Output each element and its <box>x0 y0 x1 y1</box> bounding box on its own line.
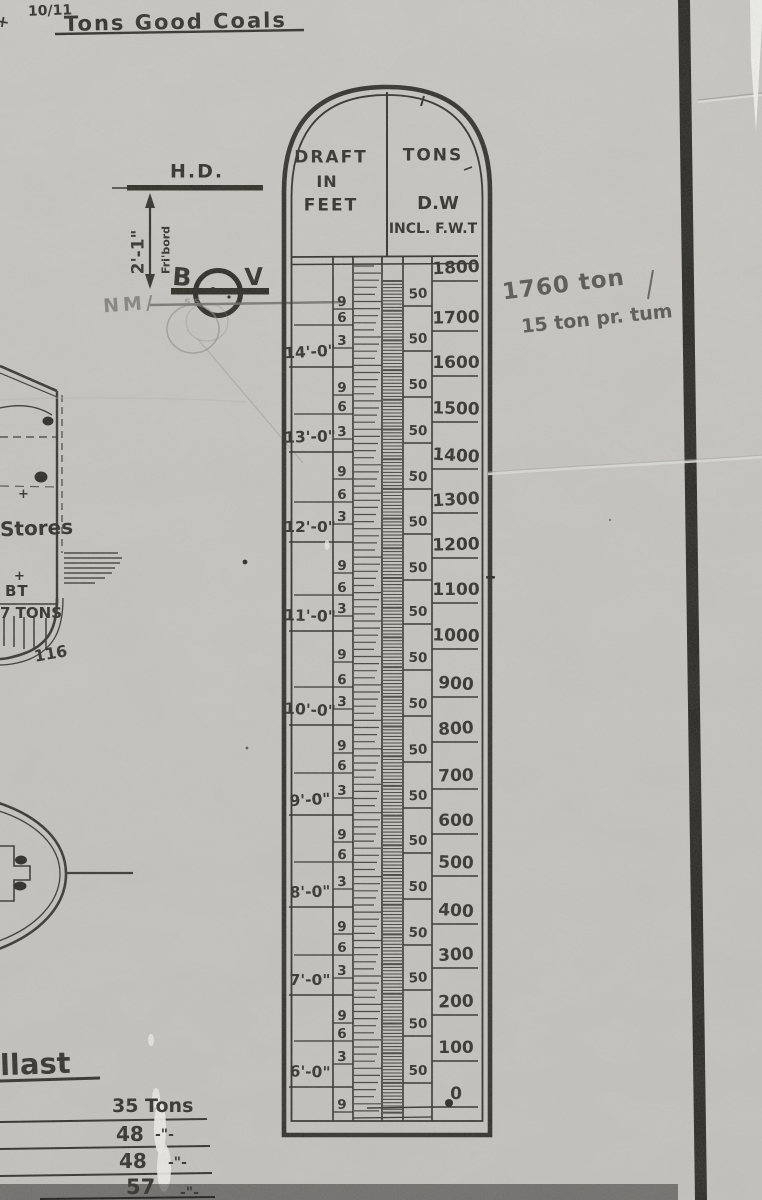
draft-foot-label: 10'-0" <box>284 700 337 721</box>
ballast-row-value: 35 Tons <box>112 1097 193 1116</box>
tons-label: 600 <box>438 811 474 831</box>
draft-inch-mark: 6 <box>337 1026 347 1043</box>
freeboard-dimension: 2'-1" <box>131 230 148 275</box>
drawing-linework <box>0 0 762 1200</box>
nm-pencil-label: NM/ <box>103 294 158 317</box>
draft-inch-mark: 6 <box>337 310 347 326</box>
tons-label: 1100 <box>432 580 479 600</box>
draft-inch-mark: 9 <box>337 464 347 480</box>
fifty-label: 50 <box>408 513 428 530</box>
draft-inch-mark: 9 <box>337 294 347 311</box>
draft-inch-mark: 9 <box>337 1008 347 1025</box>
scale-header-dw: D.W <box>417 195 459 213</box>
draft-foot-label: 9'-0" <box>289 790 331 810</box>
plus-mark-upper: + <box>18 488 29 501</box>
fifty-label: 50 <box>408 788 427 805</box>
hull-tons-label: 7 TONS <box>0 606 62 621</box>
fribord-label: Fri'bord <box>161 226 172 274</box>
fifty-label: 50 <box>408 560 427 577</box>
fifty-label: 50 <box>409 604 428 620</box>
draft-inch-mark: 9 <box>337 647 346 663</box>
ballast-row-ditto: -"- <box>180 1186 199 1200</box>
tons-label: 500 <box>438 853 474 874</box>
scale-header-draft: DRAFT <box>294 150 368 167</box>
tons-label: 0 <box>450 1084 462 1104</box>
bottom-light-band <box>0 1184 678 1200</box>
ballast-row-ditto: -"- <box>155 1128 174 1142</box>
fifty-label: 50 <box>408 423 427 440</box>
ballast-row-value: 48 <box>119 1151 147 1171</box>
fifty-label: 50 <box>408 285 428 302</box>
scale-header-feet: FEET <box>304 198 358 215</box>
fifty-label: 50 <box>408 695 428 712</box>
tons-label: 1600 <box>432 353 479 373</box>
fifty-label: 50 <box>409 377 428 393</box>
draft-inch-mark: 6 <box>337 940 346 956</box>
tons-label: 900 <box>438 673 475 695</box>
fifty-label: 50 <box>408 741 428 758</box>
top-note-text: Tons Good Coals <box>64 10 287 35</box>
fifty-label: 50 <box>408 879 427 896</box>
scale-header-in: IN <box>316 174 337 190</box>
draft-foot-label: 14'-0" <box>284 342 337 363</box>
draft-inch-mark: 6 <box>337 580 347 597</box>
draft-inch-mark: 3 <box>337 424 347 441</box>
draft-inch-mark: 9 <box>337 919 347 935</box>
tons-label: 1400 <box>432 445 480 468</box>
loadline-letter-b: B <box>172 264 193 290</box>
fifty-label: 50 <box>408 468 428 485</box>
draft-inch-mark: 3 <box>337 333 346 349</box>
draft-inch-mark: 9 <box>337 380 347 396</box>
fifty-label: 50 <box>409 1063 428 1079</box>
tons-label: 800 <box>438 718 475 740</box>
page-spine-band <box>678 0 707 1200</box>
draft-inch-mark: 3 <box>337 601 347 617</box>
scale-header-incl-fwt: INCL. F.W.T <box>389 222 477 236</box>
draft-inch-mark: 9 <box>337 1097 346 1113</box>
fifty-label: 50 <box>408 924 428 941</box>
bow-contour-sketch <box>0 802 133 950</box>
ballast-heading: llast <box>0 1049 71 1080</box>
draft-inch-mark: 6 <box>337 758 347 774</box>
tons-label: 100 <box>438 1038 474 1058</box>
draft-inch-mark: 9 <box>337 558 347 575</box>
draft-inch-mark: 6 <box>337 672 347 688</box>
tons-label: 400 <box>438 900 475 922</box>
draft-foot-label: 13'-0" <box>284 427 336 446</box>
draft-foot-label: 11'-0" <box>284 606 336 625</box>
fifty-label: 50 <box>409 833 428 849</box>
fifty-label: 50 <box>408 969 428 986</box>
draft-inch-mark: 9 <box>337 738 347 755</box>
hd-label: H.D. <box>170 163 224 182</box>
scanned-drawing-page: + 10/11 Tons Good Coals H.D. 2'-1" Fri'b… <box>0 0 762 1200</box>
tons-label: 1000 <box>432 625 480 646</box>
tons-label: 1300 <box>432 489 480 512</box>
fifty-label: 50 <box>408 1016 427 1033</box>
ballast-row-ditto: -"- <box>168 1156 187 1170</box>
draft-inch-mark: 6 <box>337 487 346 503</box>
draft-inch-mark: 3 <box>337 783 346 799</box>
draft-foot-label: 12'-0" <box>284 518 336 536</box>
bt-label: BT <box>5 584 29 599</box>
tons-label: 700 <box>438 766 474 787</box>
s-pencil-marks: s s <box>184 297 199 307</box>
tons-label: 1800 <box>432 257 480 280</box>
draft-inch-mark: 3 <box>337 963 347 979</box>
draft-foot-label: 8'-0" <box>289 882 330 901</box>
tons-label: 1500 <box>432 398 480 419</box>
loadline-letter-v: V <box>244 265 264 290</box>
tons-label: 1200 <box>432 534 480 555</box>
ballast-row-value: 48 <box>116 1124 144 1144</box>
tons-label: 200 <box>438 992 474 1013</box>
draft-inch-mark: 3 <box>337 874 347 891</box>
draft-inch-mark: 3 <box>337 694 347 711</box>
paper-creases <box>0 93 762 474</box>
fifty-label: 50 <box>408 650 427 667</box>
tons-label: 300 <box>438 944 475 966</box>
draft-inch-mark: 9 <box>337 827 347 843</box>
draft-inch-mark: 3 <box>337 509 347 525</box>
draft-foot-label: 7'-0" <box>290 971 331 989</box>
draft-foot-label: 6'-0" <box>289 1062 330 1081</box>
tons-label: 1700 <box>432 307 480 328</box>
scale-header-tons: TONS <box>403 148 464 165</box>
draft-inch-mark: 3 <box>337 1049 347 1065</box>
ballast-row-value: 57 <box>126 1177 155 1198</box>
draft-inch-mark: 6 <box>337 399 347 416</box>
draft-inch-mark: 6 <box>337 847 347 864</box>
stores-label: Stores <box>0 517 73 540</box>
fifty-label: 50 <box>408 331 427 348</box>
